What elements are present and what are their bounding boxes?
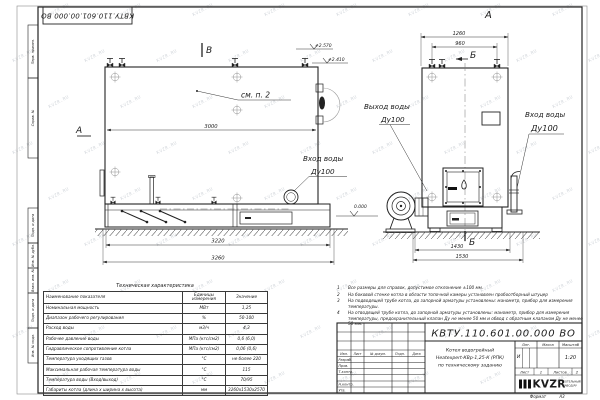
product-title-2: Heatexpert-КВр-1,25-К (РПК) xyxy=(436,355,504,361)
col-izm: Изм. xyxy=(340,352,348,356)
sheet-label: Лист xyxy=(519,370,530,374)
front-outlet-label: Выход воды xyxy=(364,102,410,111)
product-title-1: Котел водогрейный xyxy=(446,348,494,354)
kvzr-logo: KVZR КОТЕЛЬНЫЙ ЗАВОД.РУ xyxy=(519,379,581,391)
elev-2570: +2.570 xyxy=(315,43,332,49)
scale-value: 1:20 xyxy=(565,355,576,361)
stamp-podp-data-1: Подп. и дата xyxy=(31,214,35,237)
tech-table-title: Техническая характеристика xyxy=(43,283,267,289)
tech-row: Максимальная рабочая температура воды°С1… xyxy=(44,365,268,375)
tech-header-name: Наименование показателя xyxy=(44,292,183,304)
dim-1260: 1260 xyxy=(453,31,466,37)
doc-number-top: КВТУ.110.601.00.000 ВО xyxy=(41,12,134,20)
side-inlet-label: Вход воды xyxy=(303,154,343,163)
role-prov: Пров. xyxy=(339,364,349,368)
tech-header-units: Единицы измерения xyxy=(183,292,226,304)
boiler-front-view xyxy=(383,60,540,245)
front-view-labels: А 1260 960 1430 1530 Б Б Выход воды Ду10… xyxy=(364,10,565,260)
col-data: Дата xyxy=(411,352,420,356)
front-inlet-dn: Ду100 xyxy=(530,123,558,133)
note-item: 2На боковой стенке котла в области топоч… xyxy=(337,292,584,298)
drawing-sheet: KVZR.RUKVZR.RUKVZR.RUKVZR.RUKVZR.RUKVZR.… xyxy=(0,0,600,400)
section-a-mark: А xyxy=(75,126,82,136)
elev-2410: +2.410 xyxy=(328,57,345,63)
sheets-label: Листов xyxy=(552,370,566,374)
format-label: Формат xyxy=(530,394,547,399)
side-view-dimensions xyxy=(103,130,334,265)
front-inlet-label: Вход воды xyxy=(525,110,565,119)
note-item: 4На отводящей трубе котла, до запорной а… xyxy=(337,310,584,327)
dim-3220: 3220 xyxy=(211,239,225,245)
mass-header: Масса xyxy=(542,343,553,347)
dim-960: 960 xyxy=(455,41,465,47)
stamp-perv-primen: Перв. примен. xyxy=(31,39,35,64)
role-utv: Утв. xyxy=(339,389,346,393)
format-value: А3 xyxy=(558,394,565,399)
dim-1430: 1430 xyxy=(451,244,464,250)
section-b-bottom: Б xyxy=(469,238,475,248)
tech-row: Температура уходящих газов°Сне более 220 xyxy=(44,355,268,365)
stamp-vzam-inv: Взам. инв. № xyxy=(31,269,35,292)
lit-value: И xyxy=(517,354,521,360)
lit-header: Лит. xyxy=(521,343,530,347)
stamp-podp-data-2: Подп. и дата xyxy=(31,299,35,322)
tech-row: Расход водым3/ч4,3 xyxy=(44,324,268,334)
tech-table: Наименование показателя Единицы измерени… xyxy=(43,291,268,396)
col-list: Лист xyxy=(352,352,361,356)
role-nkontr: Н.контр. xyxy=(339,383,354,387)
elev-0000: 0.000 xyxy=(354,204,367,210)
section-b-mark: В xyxy=(206,46,212,56)
side-inlet-dn: Ду100 xyxy=(310,167,335,176)
note-item: 3На подводящей трубе котла, до запорной … xyxy=(337,298,584,309)
logo-text: KVZR xyxy=(533,379,566,391)
stamp-sprav: Справ. № xyxy=(31,109,35,126)
dim-3000: 3000 xyxy=(204,124,218,130)
notes: 1Все размеры для справок, допустимое отк… xyxy=(337,285,584,328)
boiler-side-view xyxy=(95,59,348,237)
note-item: 1Все размеры для справок, допустимое отк… xyxy=(337,285,584,291)
role-tkontr: Т.контр. xyxy=(339,370,354,374)
stamp-inv-dubl: Инв. № дубл. xyxy=(31,244,35,267)
tech-row: Диапазон рабочего регулирования%50-100 xyxy=(44,313,268,323)
view-a-label: А xyxy=(484,10,492,21)
col-doc: № докум. xyxy=(369,352,386,356)
product-title-3: по техническому заданию xyxy=(438,364,502,369)
dim-1530: 1530 xyxy=(456,254,469,260)
tech-row: Номинальная мощностьМВт1,25 xyxy=(44,303,268,313)
role-razrab: Разраб. xyxy=(339,358,352,362)
tech-row: Температура воды (Вход/выход)°С70/95 xyxy=(44,375,268,385)
section-b-top: Б xyxy=(470,51,476,61)
tech-table-header-row: Наименование показателя Единицы измерени… xyxy=(44,292,268,304)
sheet-value: 1 xyxy=(540,369,542,374)
scale-header: Масштаб xyxy=(562,343,580,347)
stamp-inv-podl: Инв. № подл. xyxy=(31,334,35,357)
dim-3260: 3260 xyxy=(211,256,225,262)
sheets-value: 2 xyxy=(576,369,579,374)
tech-row: Гидравлическое сопротивление котлаМПа (к… xyxy=(44,344,268,354)
tech-row: Габариты котла (длина х ширина х высота)… xyxy=(44,386,268,396)
front-outlet-dn: Ду100 xyxy=(380,115,405,124)
title-block-text: КВТУ.110.601.00.000 ВО Котел водогрейный… xyxy=(339,329,581,400)
tech-row: Рабочее давление водыМПа (кгс/см2)0,6 (6… xyxy=(44,334,268,344)
tech-header-value: Значение xyxy=(226,292,268,304)
note-ref: см. п. 2 xyxy=(241,91,270,100)
doc-number: КВТУ.110.601.00.000 ВО xyxy=(431,329,575,340)
logo-sub2: ЗАВОД.РУ xyxy=(563,384,577,388)
col-podp: Подп. xyxy=(395,352,405,356)
